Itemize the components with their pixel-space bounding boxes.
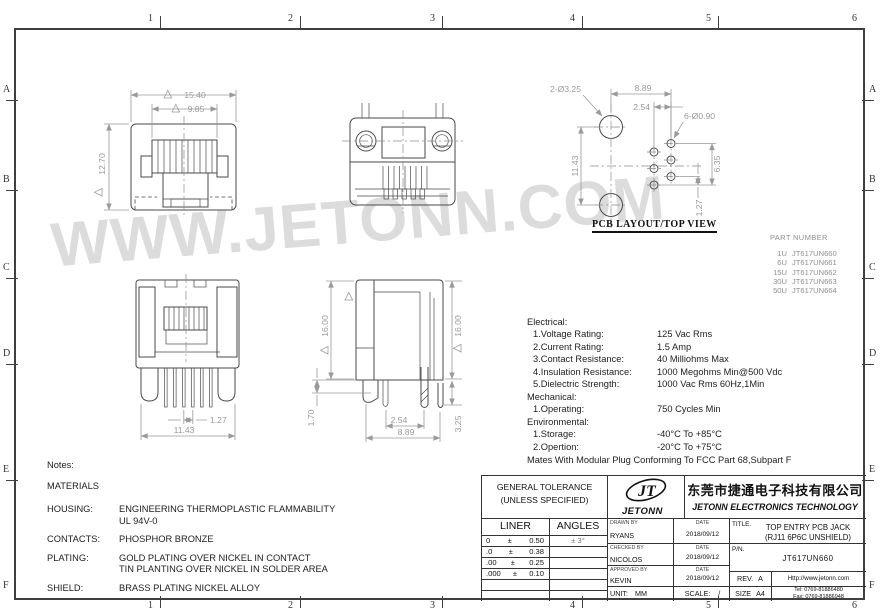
rear-top-notch [165,280,177,287]
leader-line [583,95,602,116]
note-line: GOLD PLATING OVER NICKEL IN CONTACT [119,553,328,565]
inspection-flag-icon [454,344,462,352]
website: Http://www.jetonn.com [771,571,866,586]
front-latch-tab [171,199,200,207]
col-liner: LINER [482,518,549,535]
tol-value: 0.50 [529,535,544,546]
rev-value: A [758,574,763,583]
qty: 50U [770,286,787,295]
checked-date: 2018/09/12 [676,554,729,561]
dim-label: 15.40 [184,90,206,100]
dim-label: 2-Ø3.25 [550,84,581,94]
pcb-layout-view: 8.89 2.54 2-Ø3.25 6-Ø0.90 11.43 6.35 1.2… [550,83,722,228]
inspection-flag-icon [321,346,329,354]
drawn-by-label: DRAWN BY [610,520,638,526]
qty: 15U [770,268,787,277]
tolerance-header-line1: GENERAL TOLERANCE [482,481,607,494]
note-label: HOUSING: [47,504,119,527]
spec-label: 5.Dielectric Strength: [527,378,657,390]
pn-code: JT617UN664 [792,286,837,295]
grid-line [482,579,607,580]
dim-label: 1.27 [694,199,704,216]
dim-label: 3.25 [453,415,463,432]
rear-left-wing [139,287,155,357]
note-line: ENGINEERING THERMOPLASTIC FLAMMABILITY [119,504,335,516]
note-label: SHIELD: [47,583,119,595]
tol-prefix: .00 [486,557,497,568]
title-block: GENERAL TOLERANCE (UNLESS SPECIFIED) LIN… [481,475,866,601]
rev-cell: REV. A [729,571,771,586]
dim-label: 6.35 [712,155,722,172]
dim-ext-lines [676,163,700,198]
note-label: PLATING: [47,553,119,576]
tolerance-header-line2: (UNLESS SPECIFIED) [482,494,607,507]
contact-cell: Tel: 0769-81886480 Fax: 0769-81886948 [771,586,866,601]
part-number-header: PART NUMBER [770,233,837,242]
tol-prefix: 0 [486,535,490,546]
rear-pin [174,368,177,407]
top-pin [411,189,416,199]
front-view: 15.40 9.85 12.70 [95,90,237,218]
rear-contact-comb [169,307,204,330]
spec-row: 2.Current Rating:1.5 Amp [527,341,872,353]
rear-latch-box [166,330,207,344]
scale-label: SCALE: [685,589,711,598]
tolerance-row: 0±0.50 [486,535,544,546]
grid-line [673,518,674,601]
spec-value: 1.5 Amp [657,341,691,353]
drawn-date: 2018/09/12 [676,531,729,538]
dim-label: 9.85 [188,104,205,114]
dim-label: 16.00 [453,315,463,337]
spec-value: 40 Milliohms Max [657,353,729,365]
rear-pin [183,368,186,407]
top-post-stubs [362,103,443,118]
spec-label: 4.Insulation Resistance: [527,366,657,378]
scale-cell: SCALE: / [676,586,729,601]
spec-label: 1.Voltage Rating: [527,328,657,340]
rear-pin [165,368,168,407]
dim-label: 8.89 [398,427,415,437]
dim-label: 11.43 [174,425,195,435]
spec-label: Electrical: [527,316,651,328]
rear-right-leg [218,368,235,401]
pn-code: JT617UN663 [792,277,837,286]
pn-value: JT617UN660 [750,554,866,564]
front-latch-opening [163,173,208,207]
top-rear-band [355,189,450,196]
spec-row: 1.Operating:750 Cycles Min [527,403,872,415]
scale-value: / [718,589,720,598]
note-value: PHOSPHOR BRONZE [119,534,214,546]
qty: 30U [770,277,787,286]
tol-value: 0.25 [529,557,544,568]
col-angles: ANGLES [549,518,607,535]
side-front-hook-leg [363,380,378,402]
checked-by-label: CHECKED BY [610,545,644,551]
approved-by-value: KEVIN [610,576,632,585]
inspection-flag-icon [345,293,353,301]
spec-section: Environmental: [527,416,872,428]
pn-code: JT617UN662 [792,268,837,277]
jetonn-logo-icon: JT JETONN [607,476,684,518]
note-line: UL 94V-0 [119,516,335,528]
spec-value: 125 Vac Rms [657,328,712,340]
spec-value: 1000 Megohms Min@500 Vdc [657,366,782,378]
part-number-row: 30UJT617UN663 [770,277,837,286]
inspection-flag-icon [164,91,172,99]
unit-label: UNIT: [610,589,628,598]
grid-line [729,543,866,544]
plus-minus: ± [508,535,512,546]
side-tab-hatch [421,388,428,402]
note-line: PHOSPHOR BRONZE [119,534,214,546]
dim-ext-lines [611,89,671,136]
approved-date: 2018/09/12 [676,575,729,582]
dim-label: 6-Ø0.90 [684,111,715,121]
company-name-en: JETONN ELECTRONICS TECHNOLOGY [684,502,866,512]
pn-code: JT617UN661 [792,258,837,267]
date-label: DATE [676,520,729,526]
tel: Tel: 0769-81886480 [794,587,843,594]
company-logo: JT JETONN [607,476,684,518]
note-line: TIN PLANTING OVER NICKEL IN SOLDER AREA [119,564,328,576]
notes-block: Notes: MATERIALS HOUSING: ENGINEERING TH… [47,460,335,595]
spec-row: 1.Voltage Rating:125 Vac Rms [527,328,872,340]
unit-cell: UNIT: MM [610,586,670,601]
rear-body-outline [136,280,239,368]
note-value: BRASS PLATING NICKEL ALLOY [119,583,260,595]
dim-label: 2.54 [391,415,408,425]
qty: 1U [770,249,787,258]
spec-label: 1.Storage: [527,428,657,440]
notes-title: Notes: [47,460,335,470]
size-label: SIZE [735,589,751,598]
tol-prefix: .0 [486,546,492,557]
pcb-hole-crosses [647,137,678,193]
dim-ext-lines [326,281,354,379]
dim-label: 1.70 [306,409,316,426]
drawing-title-line2: (RJ11 6P6C UNSHIELD) [750,533,866,543]
note-row: SHIELD: BRASS PLATING NICKEL ALLOY [47,583,335,595]
note-value: ENGINEERING THERMOPLASTIC FLAMMABILITYUL… [119,504,335,527]
logo-wordmark: JETONN [622,506,664,517]
checked-by-value: NICOLOS [610,555,642,564]
grid-line [607,543,729,544]
rear-top-notch [194,280,206,287]
tolerance-header: GENERAL TOLERANCE (UNLESS SPECIFIED) [482,481,607,507]
plus-minus: ± [509,546,513,557]
tolerance-row: .00±0.25 [486,557,544,568]
spec-value: 1000 Vac Rms 60Hz,1Min [657,378,764,390]
tolerance-row: .0±0.38 [486,546,544,557]
front-contact-comb [158,140,212,173]
qty: 6U [770,258,787,267]
tol-value: 0.38 [529,546,544,557]
part-number-row: 6UJT617UN661 [770,258,837,267]
spec-section: Mechanical: [527,391,872,403]
rear-right-wing [217,287,237,357]
spec-value: -20°C To +75°C [657,441,722,453]
top-contact-comb [383,166,427,189]
spec-section: Electrical: [527,316,872,328]
note-label: CONTACTS: [47,534,119,546]
specifications-block: Electrical: 1.Voltage Rating:125 Vac Rms… [527,316,872,467]
approved-by-label: APPROVED BY [610,567,647,573]
rev-label: REV. [737,574,753,583]
rear-view: 1.27 11.43 [136,274,239,440]
front-right-tab [217,156,228,177]
dim-label: 12.70 [97,153,107,175]
dim-label: 2.54 [633,102,650,112]
front-contact-cavity [152,140,217,173]
dim-ext-lines [312,368,371,406]
spec-row: 1.Storage:-40°C To +85°C [527,428,872,440]
tol-value: 0.10 [529,568,544,579]
dim-ext-lines [104,124,129,210]
tol-prefix: .000 [486,568,501,579]
dim-label: 16.00 [320,315,330,337]
spec-label: 2.Opertion: [527,441,657,453]
note-row: HOUSING: ENGINEERING THERMOPLASTIC FLAMM… [47,504,335,527]
spec-row: 3.Contact Resistance:40 Milliohms Max [527,353,872,365]
pn-label: P/N. [732,546,744,553]
dim-label: 11.43 [570,155,580,176]
rear-pin [210,368,213,407]
logo-monogram: JT [637,483,657,500]
drawn-by-value: RYANS [610,531,634,540]
part-number-row: 50UJT617UN664 [770,286,837,295]
note-line: BRASS PLATING NICKEL ALLOY [119,583,260,595]
date-label: DATE [676,567,729,573]
rear-left-leg [141,368,158,401]
part-number-row: 1UJT617UN660 [770,249,837,258]
size-value: A4 [756,589,765,598]
spec-value: 750 Cycles Min [657,403,721,415]
title-label: TITLE. [732,521,751,528]
tolerance-row: .000±0.10 [486,568,544,579]
dim-label: 1.27 [210,415,227,425]
side-pin [383,380,388,407]
top-pin [384,189,389,199]
front-left-tab [141,156,152,177]
date-label: DATE [676,545,729,551]
unit-value: MM [635,589,647,598]
spec-label: 1.Operating: [527,403,657,415]
dim-label: 8.89 [635,83,652,93]
leader-line [674,122,683,138]
spec-label: Mechanical: [527,391,651,403]
rear-pin [201,368,204,407]
rear-contact-cavity [164,307,207,330]
note-value: GOLD PLATING OVER NICKEL IN CONTACTTIN P… [119,553,328,576]
angle-tolerance: ± 3° [549,535,607,546]
note-row: PLATING: GOLD PLATING OVER NICKEL IN CON… [47,553,335,576]
inspection-flag-icon [95,188,103,196]
top-view [342,103,463,213]
top-center-opening [382,127,425,158]
spec-label: Environmental: [527,416,651,428]
front-body-outline [131,124,236,210]
top-pin [393,189,398,199]
inspection-flag-icon [172,105,180,113]
top-pin [420,189,425,199]
materials-header: MATERIALS [47,481,335,491]
grid-line [607,565,729,566]
engineering-drawing-page: { "colors":{"line":"#4a4a4a","dimension"… [0,0,880,613]
spec-row: 4.Insulation Resistance:1000 Megohms Min… [527,366,872,378]
plus-minus: ± [511,557,515,568]
drawing-title-line1: TOP ENTRY PCB JACK [750,523,866,533]
company-name-cn: 东莞市捷通电子科技有限公司 [684,480,866,499]
spec-row: 2.Opertion:-20°C To +75°C [527,441,872,453]
spec-footer: Mates With Modular Plug Conforming To FC… [527,454,872,467]
pcb-centerlines [590,104,702,228]
plus-minus: ± [513,568,517,579]
spec-label: 2.Current Rating: [527,341,657,353]
dim-ext-lines [168,410,207,424]
part-number-table: PART NUMBER 1UJT617UN660 6UJT617UN661 15… [770,233,837,295]
spec-value: -40°C To +85°C [657,428,722,440]
drawing-title: TOP ENTRY PCB JACK (RJ11 6P6C UNSHIELD) [750,523,866,542]
side-interior-lines [356,292,434,380]
side-view: 16.00 1.70 16.00 3.25 2.54 8.89 [306,280,463,442]
rear-pin [192,368,195,407]
side-rear-pin [438,383,443,408]
part-number-row: 15UJT617UN662 [770,268,837,277]
fax: Fax: 0769-81886948 [793,594,844,601]
note-row: CONTACTS: PHOSPHOR BRONZE [47,534,335,546]
grid-line [482,590,607,591]
pn-code: JT617UN660 [792,249,837,258]
size-cell: SIZE A4 [729,586,771,601]
spec-label: 3.Contact Resistance: [527,353,657,365]
dim-ext-lines [654,102,683,146]
spec-row: 5.Dielectric Strength:1000 Vac Rms 60Hz,… [527,378,872,390]
pcb-layout-caption: PCB LAYOUT/TOP VIEW [592,219,717,233]
